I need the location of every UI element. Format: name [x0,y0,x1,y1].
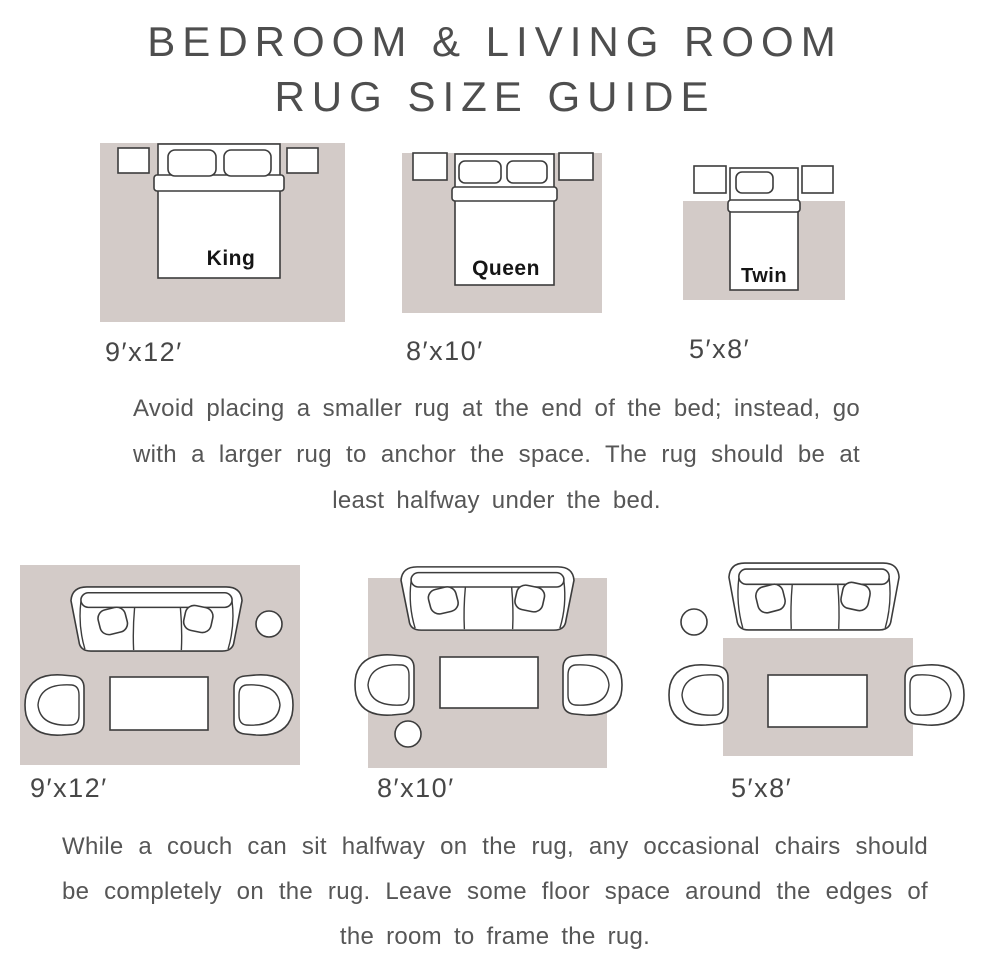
livingroom-diagram-8x10 [352,560,627,772]
bed-size-label: Queen [472,257,540,280]
rug-size-label-bedroom-king: 9′x12′ [105,337,183,368]
bedroom-diagram-king: King [100,137,345,323]
title-line-1: BEDROOM & LIVING ROOM [0,14,990,69]
nightstand-icon [694,166,726,193]
coffee-table-icon [768,675,867,727]
armchair-icon [355,655,414,715]
pillow-icon [736,172,773,193]
pillow-icon [224,150,271,176]
armchair-icon [25,675,84,735]
page-title: BEDROOM & LIVING ROOM RUG SIZE GUIDE [0,14,990,124]
sofa-icon [729,563,899,630]
rug-size-label-living-5x8: 5′x8′ [731,773,792,804]
armchair-icon [905,665,964,725]
bed-sheet-fold [452,187,557,201]
nightstand-icon [118,148,149,173]
side-table-icon [395,721,421,747]
nightstand-icon [287,148,318,173]
coffee-table-icon [440,657,538,708]
pillow-icon [507,161,547,183]
bed-sheet-fold [728,200,800,212]
nightstand-icon [559,153,593,180]
rug-size-label-living-9x12: 9′x12′ [30,773,108,804]
rug-size-label-living-8x10: 8′x10′ [377,773,455,804]
rug-size-guide-infographic: BEDROOM & LIVING ROOM RUG SIZE GUIDE Kin… [0,0,990,962]
livingroom-diagram-5x8 [660,558,970,758]
rug-size-label-bedroom-twin: 5′x8′ [689,334,750,365]
coffee-table-icon [110,677,208,730]
nightstand-icon [413,153,447,180]
title-line-2: RUG SIZE GUIDE [0,69,990,124]
pillow-icon [459,161,501,183]
bedroom-diagram-queen: Queen [402,148,602,314]
livingroom-note: While a couch can sit halfway on the rug… [62,824,928,959]
armchair-icon [563,655,622,715]
side-table-icon [256,611,282,637]
livingroom-diagram-9x12 [20,565,300,765]
sofa-icon [401,567,574,630]
nightstand-icon [802,166,833,193]
bed-size-label: King [207,247,256,270]
bed-size-label: Twin [741,265,787,287]
sofa-icon [71,587,242,651]
side-table-icon [681,609,707,635]
rug-size-label-bedroom-queen: 8′x10′ [406,336,484,367]
armchair-icon [669,665,728,725]
bed-sheet-fold [154,175,284,191]
bedroom-note: Avoid placing a smaller rug at the end o… [133,386,860,524]
pillow-icon [168,150,216,176]
armchair-icon [234,675,293,735]
bedroom-diagram-twin: Twin [683,160,845,301]
